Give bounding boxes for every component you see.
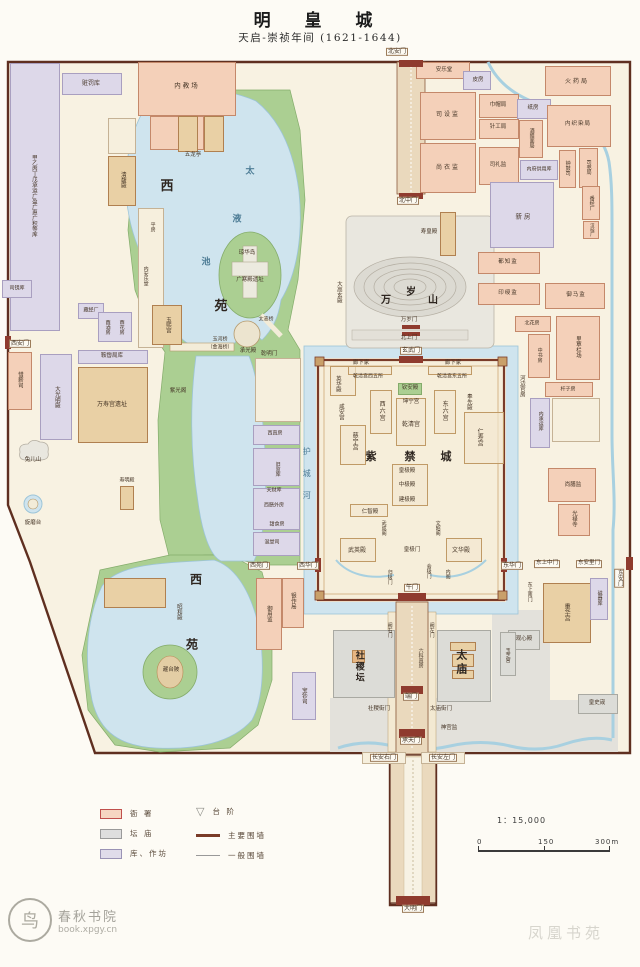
watermark-left-sub: book.xpgy.cn (58, 925, 118, 935)
map-label: 琼华岛 (239, 251, 256, 257)
map-label: 奉先殿 (465, 394, 471, 411)
map-label: 承光殿 (240, 349, 257, 355)
map-label: 东六宫 (441, 401, 447, 422)
map-label: 坤宁宫 (403, 400, 420, 406)
scale-tickmark (478, 846, 479, 852)
map-label: 北中门 (397, 197, 419, 205)
watermark-left: 鸟 春秋书院 book.xpgy.cn (8, 898, 118, 942)
map-gate (398, 593, 426, 601)
office-swatch (100, 809, 122, 819)
map-label: 皮房 (472, 78, 483, 84)
map-label: 司礼监 (490, 163, 507, 169)
map-label: 午门 (404, 584, 420, 592)
map-label: 内阁 (444, 569, 449, 579)
map-label: 东华门 (501, 562, 523, 570)
map-label: 光禄寺 (570, 511, 576, 528)
map-label: 紫光阁 (170, 389, 187, 395)
map-label: 东安里门 (576, 560, 602, 568)
map-label: 西苑门 (248, 562, 270, 570)
map-label: 尚衣监 (436, 165, 460, 171)
map-label: 司苑局 (585, 160, 590, 175)
map-label: 昭和殿 (175, 604, 181, 621)
watermark-right: 凤凰书苑 (528, 922, 604, 943)
map-label: 东上南门 (526, 582, 531, 602)
legend-label: 坛 庙 (130, 828, 153, 839)
map-gate (626, 557, 633, 570)
map-label: 万寿宫遗址 (97, 402, 127, 408)
normal-wall-swatch (196, 855, 220, 856)
map-label: 乾明门 (261, 352, 278, 358)
legend-item-workshop: 库、作坊 (100, 848, 168, 859)
map-label: 旧监库 (274, 462, 279, 477)
map-label: 内承运库 (537, 411, 542, 431)
legend-label: 衙 署 (130, 808, 153, 819)
map-label: 宝钞司 (300, 688, 306, 705)
map-label: 北安门 (386, 48, 408, 56)
map-label: 西 (190, 574, 202, 587)
map-label: 城 (441, 451, 452, 463)
map-label: 岁 (406, 288, 416, 299)
legend-item-steps: ▽ 台 阶 (196, 806, 236, 817)
map-label: 广寒殿遗址 (236, 278, 264, 284)
legend-item-main-wall: 主要围墙 (196, 830, 266, 841)
map-label: 内府供用库 (526, 167, 551, 172)
map-label: 寿明殿 (119, 478, 134, 483)
map-label: 寿皇殿 (421, 230, 438, 236)
map-label: 禁 (405, 451, 416, 463)
publisher-seal-icon: 鸟 (8, 898, 52, 942)
map-label: 太 (245, 167, 254, 176)
map-label: 玄武门 (400, 347, 422, 355)
map-label: 池 (201, 258, 210, 267)
legend-label: 台 阶 (212, 806, 235, 817)
map-label: 玉河桥 (212, 337, 227, 342)
map-label: 玉芝宫 (504, 648, 509, 663)
map-label: 中书房 (536, 348, 541, 363)
map-label: 兔儿山 (25, 458, 42, 464)
map-label: 纸房 (527, 106, 538, 112)
map-label: 东上中门 (534, 560, 560, 568)
legend-label: 主要围墙 (228, 830, 266, 841)
map-label: 乾清宫 (402, 422, 420, 428)
map-label: 玉熙宫 (164, 317, 170, 334)
map-label: 尚膳监 (565, 483, 582, 489)
map-label: 苑 (186, 639, 198, 652)
map-label: 英华殿 (334, 376, 340, 393)
map-label: 河边官房 (518, 375, 524, 397)
map-label: 乾清宫西五所 (353, 374, 383, 379)
map-label: 西安门 (9, 340, 31, 348)
map-label: 皇史宬 (589, 701, 606, 707)
map-label: 司设监 (436, 112, 460, 118)
map-building (98, 312, 132, 342)
map-label: 西 (160, 180, 173, 194)
scale-tick-150: 150 (538, 838, 554, 846)
map-gate (399, 356, 423, 363)
map-label: 西华门 (297, 562, 319, 570)
map-label: 火药局 (565, 79, 589, 85)
map-label: 武成阁 (380, 521, 385, 536)
map-building (204, 116, 224, 152)
map-label: 内织染局 (565, 122, 591, 128)
map-label: 酒醋面局 (528, 128, 533, 148)
map-building (120, 486, 134, 510)
map-label: 西六宫 (378, 401, 384, 422)
legend-item-altar: 坛 庙 (100, 828, 153, 839)
map-label: 混堂司 (264, 540, 279, 545)
map-gate (402, 325, 420, 329)
map-label: 银作局 (289, 593, 295, 610)
map-building (464, 412, 504, 464)
map-label: 御用监 (265, 606, 271, 623)
scale-tickmark (544, 846, 545, 852)
map-label: 印绶监 (498, 291, 518, 297)
map-label: 仁智殿 (362, 510, 379, 516)
historical-map-page: 明 皇 城 天启-崇祯年间 (1621-1644) (0, 0, 640, 967)
scale-tick-300: 300m (595, 838, 619, 846)
legend-item-office: 衙 署 (100, 808, 153, 819)
main-wall-swatch (196, 834, 220, 837)
map-building (178, 116, 198, 152)
map-label: 钟鼓司 (564, 161, 569, 176)
map-label: 万 (381, 296, 391, 307)
legend-label: 库、作坊 (130, 848, 168, 859)
map-label: 西直房 (267, 431, 282, 436)
map-label: 内安乐堂 (142, 266, 147, 286)
map-label: 万岁门 (401, 318, 418, 324)
map-label: 旋磨台 (25, 521, 42, 527)
altar-swatch (100, 829, 122, 839)
map-gate (396, 896, 430, 905)
map-label: 钦安殿 (402, 386, 419, 392)
map-label: 大光明殿 (53, 386, 59, 408)
watermark-left-name: 春秋书院 (58, 906, 118, 925)
map-label: 太液桥 (258, 317, 273, 322)
map-label: 杆子房 (560, 387, 575, 392)
map-label: 赃罚库 (82, 81, 100, 87)
map-label: 西酒房 (104, 320, 109, 335)
map-label: 大高玄殿 (335, 281, 341, 303)
map-label: 五龙亭 (185, 153, 202, 159)
map-label: 重华宫 (563, 603, 569, 621)
map-label: 磁器库 (596, 591, 601, 606)
map-label: 文昭阁 (434, 521, 439, 536)
map-label: 里草栏场 (574, 336, 580, 358)
map-label: 东安门 (614, 569, 624, 588)
steps-icon: ▽ (196, 807, 204, 817)
map-label: 建极殿 (399, 498, 416, 504)
map-label: 社稷街门 (368, 707, 390, 713)
map-building (104, 578, 166, 608)
map-label: 咸安宫 (337, 404, 343, 421)
map-label: 西膳外房 (264, 503, 284, 508)
map-label: 阙左门 (428, 623, 433, 638)
map-label: 安乐堂 (436, 68, 453, 74)
map-label: 汉经厂 (589, 223, 594, 237)
map-label: 长安右门 (370, 754, 398, 762)
map-label: 内教场 (174, 83, 200, 90)
map-label: 液 (232, 215, 241, 224)
map-label: 护城河 (302, 447, 310, 513)
map-label: 鞍辔局库 (101, 354, 123, 360)
map-gate (399, 60, 423, 67)
scale-tick-0: 0 (477, 838, 482, 846)
scale-ratio: 1：15,000 (497, 815, 546, 826)
map-label: 会极门 (425, 564, 430, 579)
map-label: 皇极门 (404, 548, 421, 554)
map-label: 藏经厂 (83, 308, 98, 313)
map-label: 甲乙丙丁戊承运广盈广惠广积等库 (30, 155, 36, 238)
map-label: 天财库 (266, 488, 281, 493)
legend-item-normal-wall: 一般围墙 (196, 850, 266, 861)
map-label: （金海桥） (207, 345, 232, 350)
map-label: 大明门 (402, 905, 424, 913)
map-label: 巾帽局 (490, 103, 507, 109)
map-label: 惜薪司 (16, 372, 22, 389)
map-building (255, 358, 301, 422)
map-label: 社稷坛 (353, 651, 362, 684)
map-label: 端门 (403, 693, 419, 701)
map-label: 观心殿 (516, 637, 533, 643)
map-label: 太庙 (455, 649, 467, 677)
map-label: 山 (428, 296, 438, 307)
map-label: 苑 (214, 300, 227, 314)
map-label: 清馥殿 (119, 172, 125, 189)
map-label: 廊下家 (445, 361, 462, 367)
map-label: 西花房 (118, 320, 123, 335)
map-label: 仁寿宫 (476, 428, 482, 446)
map-label: 中极殿 (399, 483, 416, 489)
map-label: 廊下家 (353, 361, 370, 367)
map-label: 文华殿 (452, 548, 470, 554)
map-label: 平房 (149, 222, 154, 232)
map-label: 御马监 (566, 293, 586, 299)
map-label: 归极门 (386, 570, 391, 585)
map-label: 北上门 (401, 336, 418, 342)
map-label: 六科直房 (417, 648, 422, 668)
map-label: 新 房 (515, 214, 530, 221)
map-label: 针工局 (490, 125, 507, 131)
map-label: 紫 (366, 451, 377, 463)
map-label: 武英殿 (348, 548, 366, 554)
map-label: 太庙街门 (430, 707, 452, 713)
workshop-swatch (100, 849, 122, 859)
map-label: 长安左门 (429, 754, 457, 762)
map-building (108, 118, 136, 154)
map-label: 皇极殿 (399, 469, 416, 475)
legend-label: 一般围墙 (228, 850, 266, 861)
map-label: 阙右门 (386, 623, 391, 638)
map-label: 番经厂 (588, 196, 593, 211)
map-label: 神宫监 (441, 726, 458, 732)
map-label: 乾清宫东五所 (437, 374, 467, 379)
map-building (552, 398, 600, 442)
scale-tickmark (609, 846, 610, 852)
map-label: 甜食房 (269, 522, 284, 527)
map-label: 承天门 (400, 737, 422, 745)
map-label: 司钥库 (9, 286, 24, 291)
map-label: 都知监 (498, 260, 518, 266)
map-building (333, 630, 395, 698)
map-label: 北花房 (524, 321, 539, 326)
map-building (440, 212, 456, 256)
map-label: 慈宁宫 (351, 432, 357, 450)
map-label: 趯台陂 (163, 668, 180, 674)
